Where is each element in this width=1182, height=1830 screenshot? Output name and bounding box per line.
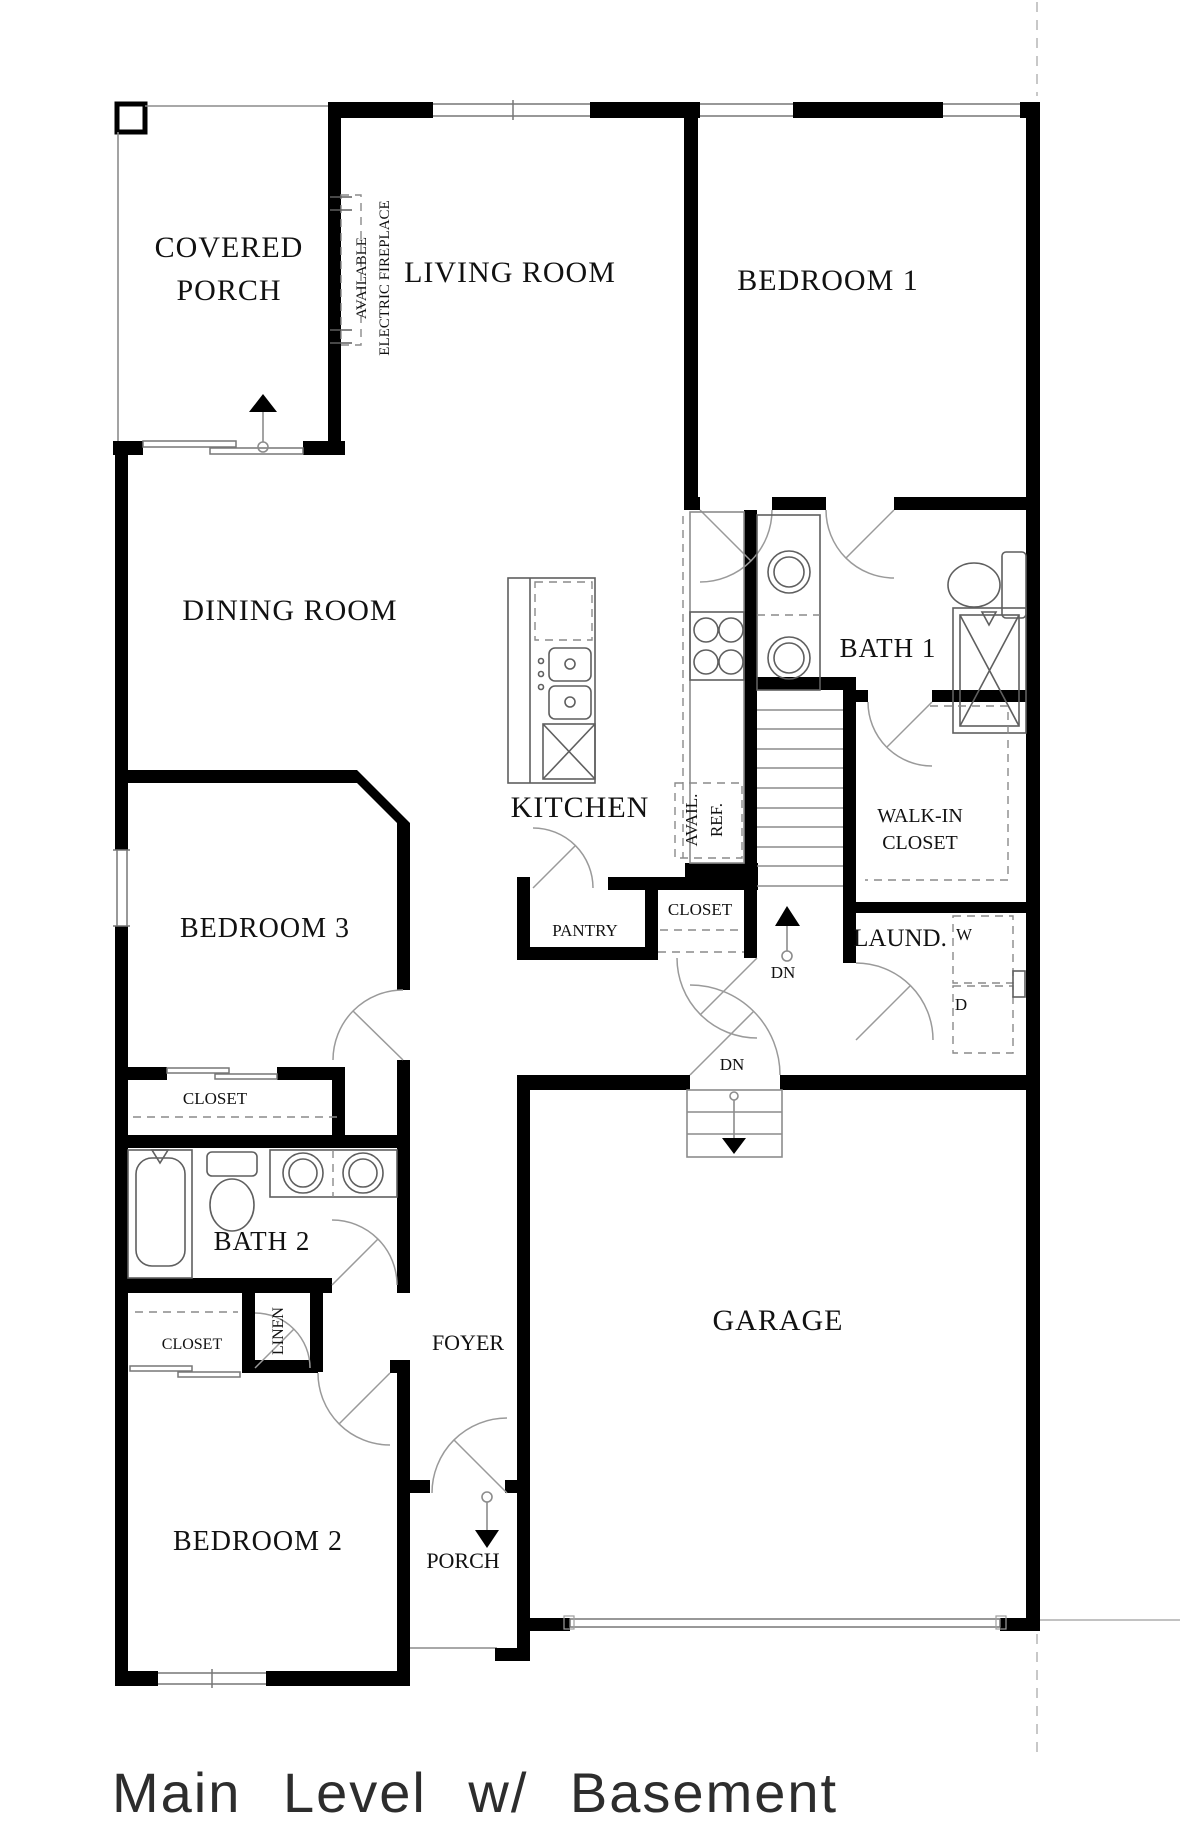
room-label-covered-porch-line2: PORCH [176, 274, 281, 307]
wall-segment [242, 1360, 318, 1373]
reference-lines [1037, 2, 1180, 1756]
room-label-bath1: BATH 1 [840, 633, 937, 663]
wall-segment [128, 1067, 167, 1080]
wall-segment [1026, 102, 1040, 1631]
basement-stairs [757, 710, 843, 961]
room-label-foyer: FOYER [432, 1330, 504, 1355]
front-door [432, 1418, 507, 1493]
wall-segment [645, 890, 658, 950]
walls [113, 102, 1040, 1686]
range-stove [690, 612, 744, 680]
stairs-dn-label: DN [771, 963, 796, 982]
doors [255, 510, 933, 1493]
room-label-dining-room: DINING ROOM [182, 594, 397, 627]
bedroom3-door [333, 990, 403, 1060]
wall-segment [495, 1648, 530, 1661]
room-label-bath2: BATH 2 [214, 1226, 311, 1256]
wall-segment [115, 1671, 158, 1686]
room-label-bedroom3: BEDROOM 3 [180, 913, 350, 944]
front-porch-entry-arrow [475, 1492, 499, 1548]
garage-down-arrowhead [722, 1138, 746, 1154]
fireplace-note-line2: ELECTRIC FIREPLACE [377, 200, 393, 355]
wall-segment [266, 1671, 410, 1686]
garage-steps [687, 1090, 782, 1157]
room-label-bedroom3-closet: CLOSET [183, 1089, 248, 1108]
room-label-kitchen: KITCHEN [511, 791, 650, 824]
wall-segment [932, 690, 1040, 702]
wall-segment [744, 510, 757, 958]
wall-segment [397, 1060, 410, 1135]
bath1-door [826, 510, 894, 578]
wall-segment [397, 1373, 410, 1671]
room-label-covered-porch-line1: COVERED [155, 231, 304, 264]
room-label-walkin-line2: CLOSET [882, 832, 958, 854]
stairs-up-arrowhead [775, 906, 800, 926]
wall-segment [303, 441, 345, 455]
covered-porch-entry-arrow [249, 394, 277, 452]
bath1-vanity [757, 515, 820, 690]
pantry-door [533, 828, 593, 888]
wall-segment [115, 926, 128, 1673]
wall-segment [685, 863, 758, 877]
wall-segment [590, 102, 700, 118]
porch-sliding-door [143, 441, 303, 454]
wall-segment [894, 497, 1040, 510]
room-label-bedroom2: BEDROOM 2 [173, 1526, 343, 1557]
room-label-bedroom2-closet: CLOSET [162, 1336, 223, 1353]
wall-segment [505, 1480, 530, 1493]
wall-segment [793, 102, 943, 118]
wall-segment [332, 1067, 345, 1135]
wall-segment [410, 1480, 430, 1493]
hall-door [677, 958, 757, 1038]
wall-segment [128, 1135, 410, 1148]
wall-segment [780, 1075, 1040, 1090]
garage-dn-label: DN [720, 1055, 745, 1074]
fridge-note-line2: REF. [707, 803, 726, 837]
bath1-shower [953, 608, 1026, 733]
dryer-label: D [955, 995, 967, 1014]
wall-segment [684, 497, 700, 510]
bedroom1-window-right [943, 104, 1020, 116]
windows [113, 100, 1020, 1688]
plan-title: Main Level w/ Basement [112, 1761, 838, 1824]
bedroom3-window [113, 850, 130, 926]
room-label-bedroom1: BEDROOM 1 [737, 264, 919, 297]
stairs-arrow-origin [782, 951, 792, 961]
garage-arrow-origin [730, 1092, 738, 1100]
room-label-pantry: PANTRY [552, 921, 618, 940]
room-label-garage: GARAGE [713, 1304, 844, 1337]
room-label-porch: PORCH [426, 1548, 499, 1573]
bedroom1-window-left [700, 104, 793, 116]
wall-segment [843, 902, 1040, 913]
living-room-window [433, 100, 590, 120]
bedroom1-door [700, 510, 772, 582]
covered-porch-edges [117, 104, 497, 1648]
wall-segment [772, 497, 826, 510]
bath2-vanity [270, 1150, 397, 1197]
bedroom2-door [318, 1373, 390, 1445]
fridge-note-line1: AVAIL. [682, 794, 701, 847]
porch-post [117, 104, 145, 132]
wall-segment [517, 1075, 690, 1090]
wall-segment [397, 1148, 410, 1293]
wall-segment [608, 877, 758, 890]
wall-segment [128, 770, 357, 783]
bedroom3-closet-slider [167, 1068, 277, 1079]
wall-segment [328, 102, 433, 118]
bath2-tub [128, 1150, 192, 1278]
bath2-toilet [207, 1152, 257, 1231]
bath2-door [332, 1220, 397, 1285]
fixtures [128, 195, 1026, 1548]
floor-plan-page: COVERED PORCH LIVING ROOM BEDROOM 1 DINI… [0, 0, 1182, 1830]
laundry-vent [1013, 971, 1025, 997]
wall-segment [128, 1278, 332, 1293]
wall-segment [684, 116, 698, 497]
room-label-walkin-line1: WALK-IN [877, 805, 963, 827]
wall-segment [517, 1075, 530, 1661]
wall-segment [328, 102, 341, 455]
wall-segment [390, 1360, 410, 1373]
wall-segment [517, 947, 658, 960]
room-label-linen: LINEN [270, 1307, 287, 1355]
wall-segment [397, 823, 410, 990]
room-label-hall-closet: CLOSET [668, 900, 733, 919]
bedroom2-closet-slider [130, 1366, 240, 1377]
wall-segment [843, 690, 868, 702]
room-label-living-room: LIVING ROOM [404, 256, 616, 289]
garage-door [564, 1616, 1006, 1629]
washer-label: W [956, 925, 973, 944]
walk-in-closet-door [868, 702, 932, 766]
room-label-laundry: LAUND. [853, 925, 947, 952]
fireplace-note-line1: AVAILABLE [354, 237, 370, 319]
bedroom2-window [158, 1669, 266, 1688]
kitchen-island [508, 578, 595, 783]
wall-segment [115, 441, 128, 850]
laundry-door [856, 963, 933, 1040]
floor-plan-svg: COVERED PORCH LIVING ROOM BEDROOM 1 DINI… [0, 0, 1182, 1830]
